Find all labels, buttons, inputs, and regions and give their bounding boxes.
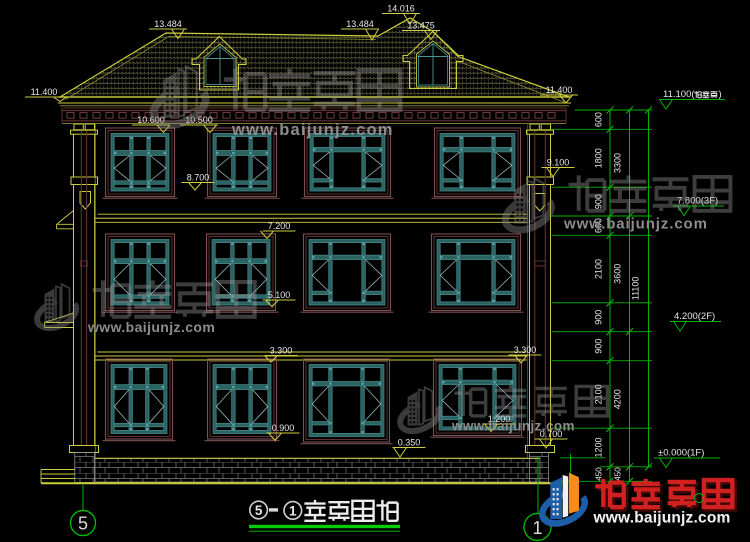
svg-text:9.100: 9.100 [547,158,570,168]
svg-text:±0.000(1F): ±0.000(1F) [658,448,704,459]
svg-text:1: 1 [289,503,297,518]
svg-text:www.baijunjz.com: www.baijunjz.com [231,121,394,139]
svg-text:7.200: 7.200 [268,221,291,231]
svg-text:4200: 4200 [613,389,623,409]
svg-text:14.016: 14.016 [387,4,415,14]
svg-text:450: 450 [614,467,623,481]
svg-text:): ) [719,89,722,100]
svg-text:0.900: 0.900 [272,423,295,433]
svg-text:11.400: 11.400 [31,87,58,97]
svg-text:3.300: 3.300 [270,346,293,356]
svg-text:900: 900 [594,310,604,325]
svg-text:www.baijunjz.com: www.baijunjz.com [563,216,708,233]
svg-text:13.484: 13.484 [346,19,374,29]
svg-text:11100: 11100 [631,277,641,301]
svg-text:1200: 1200 [594,437,604,457]
svg-text:3600: 3600 [613,264,623,284]
svg-text:11.100(: 11.100( [663,89,695,100]
svg-text:5: 5 [255,503,263,518]
svg-text:900: 900 [594,339,604,354]
svg-text:3.300: 3.300 [514,345,537,355]
svg-text:11.400: 11.400 [546,85,573,95]
svg-text:5.100: 5.100 [268,290,291,300]
svg-text:8.700: 8.700 [187,173,210,183]
svg-text:4.200(2F): 4.200(2F) [674,311,715,322]
svg-text:www.baijunjz.com: www.baijunjz.com [87,319,215,335]
svg-text:1: 1 [532,518,542,538]
svg-text:13.475: 13.475 [407,21,435,31]
svg-text:www.baijunjz.com: www.baijunjz.com [593,510,731,527]
svg-text:2100: 2100 [594,259,604,279]
svg-text:3300: 3300 [613,153,623,173]
svg-text:450: 450 [595,467,604,481]
svg-text:13.484: 13.484 [154,19,182,29]
svg-text:www.baijunjz.com: www.baijunjz.com [451,419,575,434]
svg-text:0.350: 0.350 [398,438,421,448]
svg-text:1800: 1800 [594,148,604,168]
svg-text:600: 600 [594,112,604,127]
svg-text:5: 5 [78,514,88,534]
